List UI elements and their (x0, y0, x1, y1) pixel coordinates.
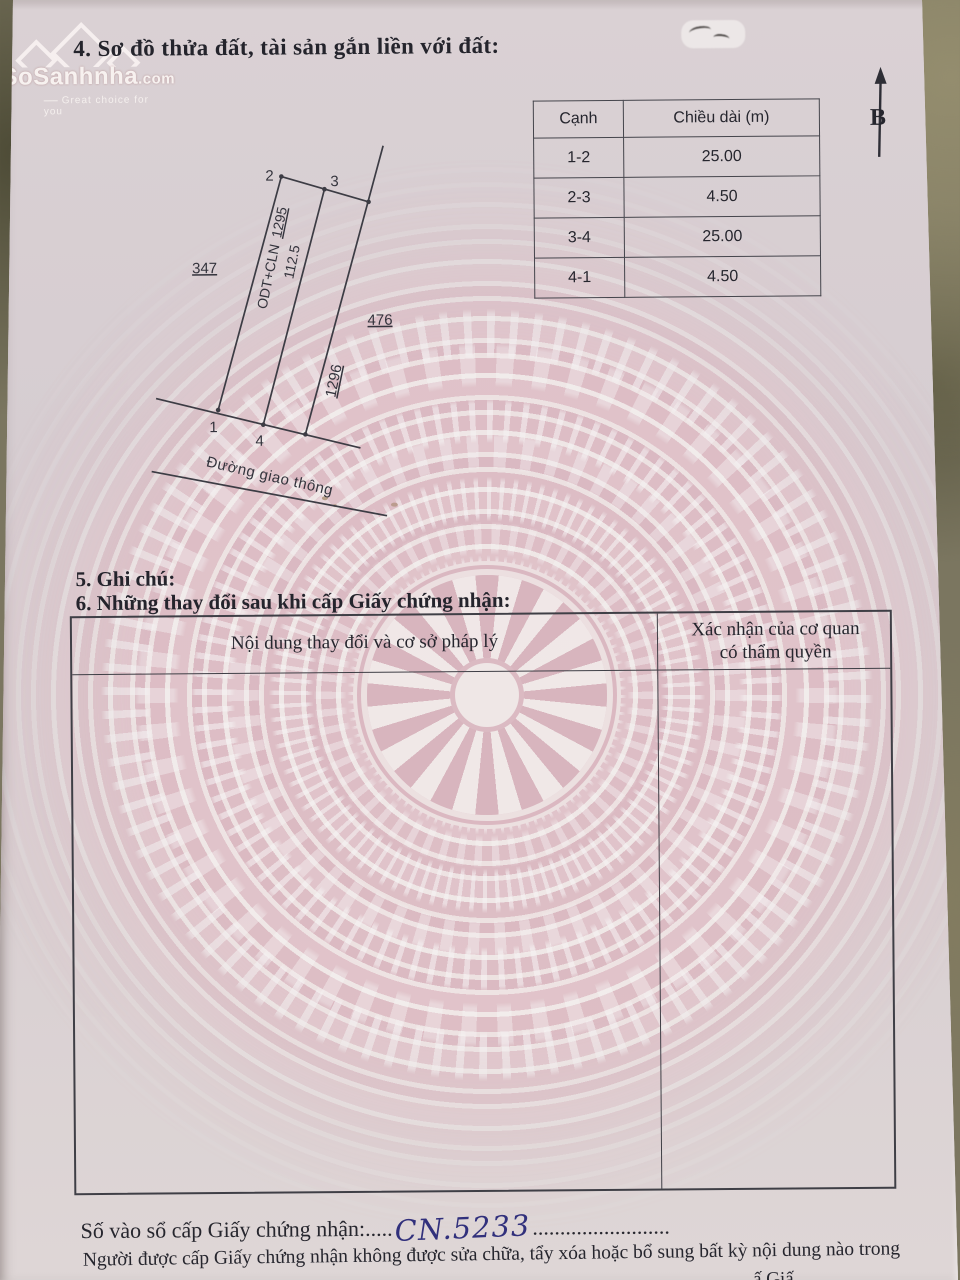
parcel-code-label: ODT+CLN (254, 243, 283, 311)
table-row: 2-3 4.50 (534, 176, 820, 218)
neighbor-parcel-1296: 1296 (322, 363, 345, 399)
dotted-leader: ......................... (532, 1214, 670, 1240)
sosanhnha-logo: SoSanhnha.com Great choice for you (0, 18, 168, 111)
corner-point-4 (261, 422, 266, 427)
paper-scuff-mark (681, 20, 745, 49)
dotted-leader: ..... (365, 1216, 393, 1241)
junction-point (366, 200, 371, 205)
section4-title: 4. Sơ đồ thửa đất, tài sản gắn liền với … (73, 33, 499, 62)
parcel-area-label: 112.5 (280, 243, 303, 280)
corner-point-3 (322, 187, 327, 192)
corner-point-1 (216, 408, 221, 413)
north-arrow-head (875, 67, 887, 84)
logo-brand-text: SoSanhnha.com (1, 62, 175, 91)
north-label: B (870, 105, 886, 131)
parcel-diagram: 2 3 1 4 347 476 ODT+CLN 1295 112.5 1296 … (136, 130, 419, 542)
col-header-canh: Cạnh (533, 100, 623, 138)
boundary-line-right (303, 146, 385, 435)
footer-next-line-fragment: ấ Giấ (753, 1269, 794, 1280)
table-header-row: Cạnh Chiều dài (m) (533, 99, 819, 138)
changes-col2-header: Xác nhận của cơ quan có thẩm quyền (657, 617, 894, 665)
registry-label: Số vào sổ cấp Giấy chứng nhận: (81, 1216, 366, 1243)
junction-point (303, 432, 308, 437)
table-column-divider (657, 614, 663, 1189)
corner-label-2: 2 (265, 168, 273, 185)
edge-length-table: Cạnh Chiều dài (m) 1-2 25.00 2-3 4.50 3-… (533, 98, 822, 298)
table-row: 1-2 25.00 (534, 136, 820, 178)
document-content: SoSanhnha.com Great choice for you 4. Sơ… (0, 0, 960, 1280)
section6-title: 6. Những thay đổi sau khi cấp Giấy chứng… (76, 588, 511, 616)
road-label: Đường giao thông (205, 453, 335, 499)
corner-point-2 (279, 174, 284, 179)
corner-label-4: 4 (255, 433, 263, 450)
table-row: 4-1 4.50 (535, 256, 821, 298)
changes-col1-header: Nội dung thay đổi và cơ sở pháp lý (72, 630, 657, 657)
neighbor-parcel-347: 347 (192, 260, 217, 277)
logo-tagline: Great choice for you (44, 94, 168, 117)
changes-table: Nội dung thay đổi và cơ sở pháp lý Xác n… (70, 610, 897, 1195)
col-header-chieu-dai: Chiều dài (m) (623, 99, 819, 138)
table-row: 3-4 25.00 (534, 216, 820, 258)
corner-label-3: 3 (330, 173, 338, 190)
table-header-separator (72, 668, 890, 675)
section5-title: 5. Ghi chú: (75, 566, 175, 592)
north-arrow: B (861, 65, 902, 165)
handwritten-registry-number: CN.5233 (394, 1208, 531, 1248)
neighbor-parcel-476: 476 (367, 312, 392, 329)
certificate-paper: SoSanhnha.com Great choice for you 4. Sơ… (0, 0, 960, 1280)
corner-label-1: 1 (209, 419, 217, 436)
